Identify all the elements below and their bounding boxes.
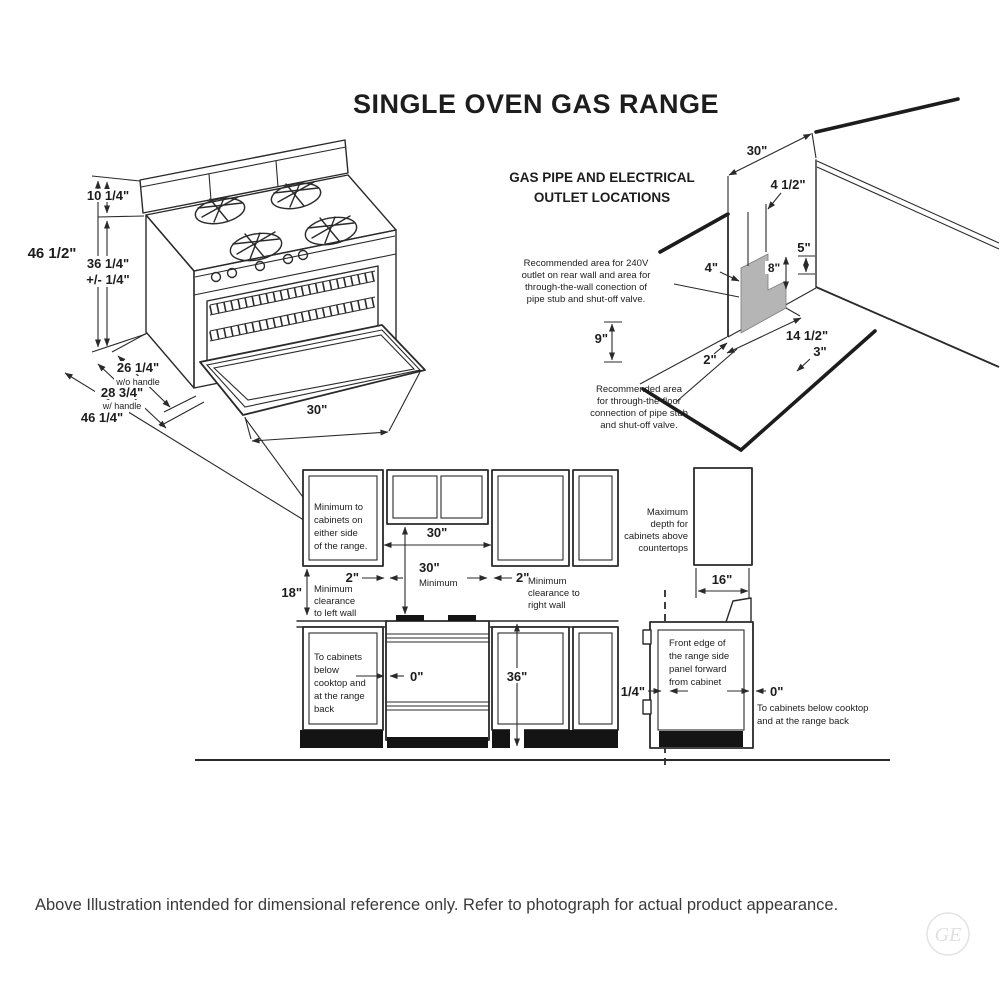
svg-text:and shut-off valve.: and shut-off valve.	[600, 420, 677, 431]
svg-text:Front edge of: Front edge of	[669, 638, 726, 649]
svg-text:pipe stub and shut-off valve.: pipe stub and shut-off valve.	[527, 294, 646, 305]
dim-width: 30"	[307, 402, 328, 417]
svg-text:below: below	[314, 665, 339, 676]
range-isometric-drawing	[140, 140, 425, 415]
svg-text:Maximum: Maximum	[647, 507, 688, 518]
base-far-right-cabinet	[573, 627, 618, 730]
side-elevation: Maximum depth for cabinets above counter…	[621, 468, 869, 766]
svg-text:clearance: clearance	[314, 596, 355, 607]
dim-3: 3"	[813, 344, 826, 359]
svg-text:back: back	[314, 704, 334, 715]
dim-left-gap: 2"	[346, 570, 359, 585]
gas-heading-line2: OUTLET LOCATIONS	[534, 190, 670, 205]
page-title: SINGLE OVEN GAS RANGE	[353, 89, 719, 119]
svg-text:panel forward: panel forward	[669, 664, 727, 675]
svg-text:Minimum to: Minimum to	[314, 502, 363, 513]
dim-cooktop-tolerance: +/- 1/4"	[86, 272, 129, 287]
ge-logo-monogram: GE	[935, 924, 962, 946]
control-knobs	[212, 251, 308, 282]
svg-text:through-the-wall conection of: through-the-wall conection of	[525, 282, 647, 293]
dim-8: 8"	[768, 261, 780, 275]
dim-zero-front: 0"	[410, 669, 423, 684]
dim-5: 5"	[797, 240, 810, 255]
svg-text:at the range: at the range	[314, 691, 365, 702]
dim-opening-width: 30"	[747, 143, 768, 158]
upper-right-cabinet	[492, 470, 569, 566]
note-left-wall: Minimum clearance to left wall	[314, 584, 356, 619]
dim-2: 2"	[703, 352, 716, 367]
gas-pipe-diagram: GAS PIPE AND ELECTRICAL OUTLET LOCATIONS…	[509, 99, 999, 450]
svg-text:outlet on rear wall and area f: outlet on rear wall and area for	[522, 270, 651, 281]
dim-depth-handle: 28 3/4"	[101, 385, 143, 400]
dim-36: 36"	[507, 669, 528, 684]
svg-text:To cabinets: To cabinets	[314, 652, 362, 663]
svg-text:right wall: right wall	[528, 600, 566, 611]
upper-far-right-cabinet	[573, 470, 618, 566]
svg-text:depth for: depth for	[651, 519, 689, 530]
note-max-depth: Maximum depth for cabinets above counter…	[624, 507, 688, 554]
svg-text:cabinets above: cabinets above	[624, 531, 688, 542]
dim-18: 18"	[281, 585, 302, 600]
note-zero-side: To cabinets below cooktop and at the ran…	[757, 703, 868, 727]
ge-logo: GE	[927, 913, 969, 955]
svg-text:of the range.: of the range.	[314, 541, 367, 552]
dim-14-5: 14 1/2"	[786, 328, 828, 343]
svg-text:from cabinet: from cabinet	[669, 677, 722, 688]
footer-disclaimer: Above Illustration intended for dimensio…	[35, 896, 838, 914]
svg-text:connection of pipe stub: connection of pipe stub	[590, 408, 688, 419]
dim-4: 4"	[705, 260, 718, 275]
dim-total-height: 46 1/2"	[28, 245, 77, 262]
svg-text:countertops: countertops	[638, 543, 688, 554]
svg-text:cabinets on: cabinets on	[314, 515, 363, 526]
svg-text:Minimum: Minimum	[528, 576, 567, 587]
burner-grates	[193, 179, 359, 264]
diagram-svg: SINGLE OVEN GAS RANGE	[0, 0, 1000, 1000]
backsplash-profile	[726, 598, 751, 622]
range-front-view	[386, 615, 489, 748]
svg-text:the range side: the range side	[669, 651, 729, 662]
dim-9: 9"	[595, 331, 608, 346]
backsplash	[140, 140, 348, 213]
svg-text:to left wall: to left wall	[314, 608, 356, 619]
svg-text:Recommended area: Recommended area	[596, 384, 683, 395]
svg-text:cooktop and: cooktop and	[314, 678, 366, 689]
min-vertical-word: Minimum	[419, 578, 458, 589]
svg-text:Minimum: Minimum	[314, 584, 353, 595]
dim-min-vertical: 30"	[419, 560, 440, 575]
svg-text:for through-the-floor: for through-the-floor	[597, 396, 681, 407]
dim-opening: 30"	[427, 525, 448, 540]
svg-text:Recommended area for 240V: Recommended area for 240V	[524, 258, 649, 269]
dim-depth-door-open: 46 1/4"	[81, 410, 123, 425]
note-right-wall: Minimum clearance to right wall	[528, 576, 580, 611]
dim-backsplash-height: 10 1/4"	[87, 188, 129, 203]
left-wall-top-edge	[660, 214, 728, 252]
toe-kick-left	[300, 730, 383, 748]
installation-diagram-page: SINGLE OVEN GAS RANGE	[0, 0, 1000, 1000]
dim-4-5: 4 1/2"	[770, 177, 805, 192]
dim-zero-side: 0"	[770, 684, 783, 699]
gas-heading-line1: GAS PIPE AND ELECTRICAL	[509, 170, 695, 185]
burner-right	[448, 615, 476, 621]
adjacent-cabinet	[816, 99, 999, 367]
handle-bottom	[643, 700, 651, 714]
burner-left	[396, 615, 424, 621]
dim-16: 16"	[712, 572, 733, 587]
svg-text:either side: either side	[314, 528, 358, 539]
handle-top	[643, 630, 651, 644]
dim-quarter: 1/4"	[621, 684, 645, 699]
upper-cabinet-side	[694, 468, 752, 565]
svg-text:clearance to: clearance to	[528, 588, 580, 599]
svg-text:and at the range back: and at the range back	[757, 716, 849, 727]
dim-cooktop-height: 36 1/4"	[87, 256, 129, 271]
cooktop-surface	[146, 175, 396, 271]
dim-depth-no-handle: 26 1/4"	[117, 360, 159, 375]
svg-text:To cabinets below cooktop: To cabinets below cooktop	[757, 703, 868, 714]
